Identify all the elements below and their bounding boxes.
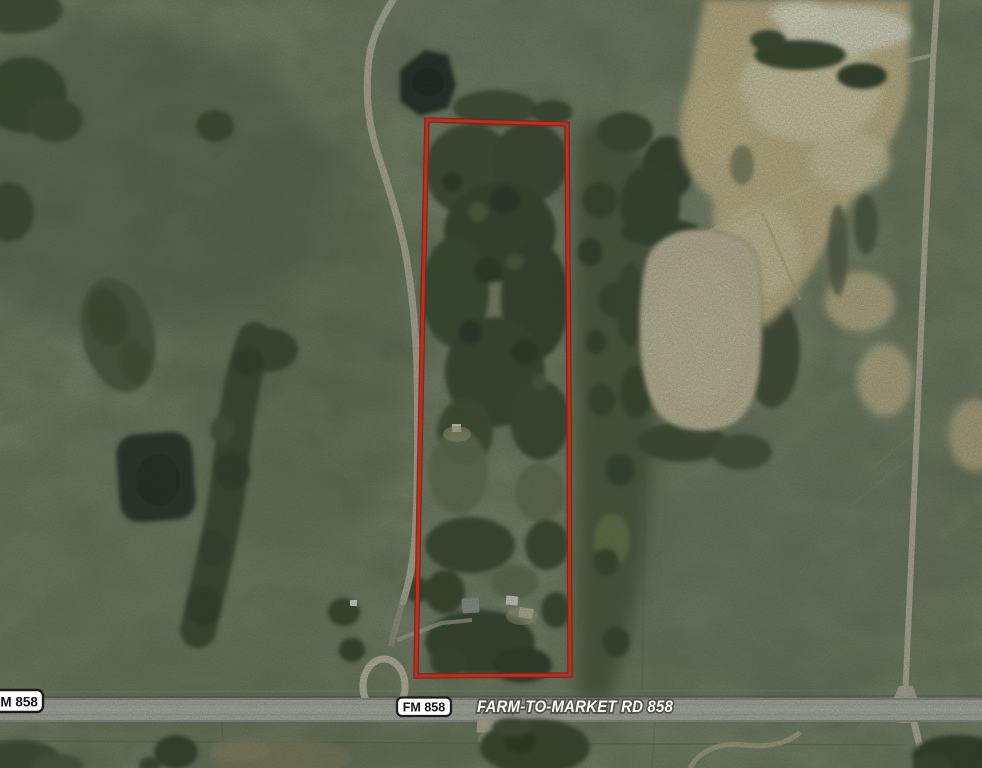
aerial-map-canvas: FM 858 FM 858 FARM-TO-MARKET RD 858 (0, 0, 982, 768)
route-shield-center: FM 858 (397, 698, 451, 717)
route-shield-left: FM 858 (0, 690, 43, 712)
route-shield-left-label: FM 858 (0, 695, 38, 710)
route-shield-center-label: FM 858 (403, 701, 445, 715)
photo-grain-overlay (0, 0, 982, 768)
road-name-label: FARM-TO-MARKET RD 858 (477, 697, 673, 716)
aerial-map: FM 858 FM 858 FARM-TO-MARKET RD 858 (0, 0, 982, 768)
